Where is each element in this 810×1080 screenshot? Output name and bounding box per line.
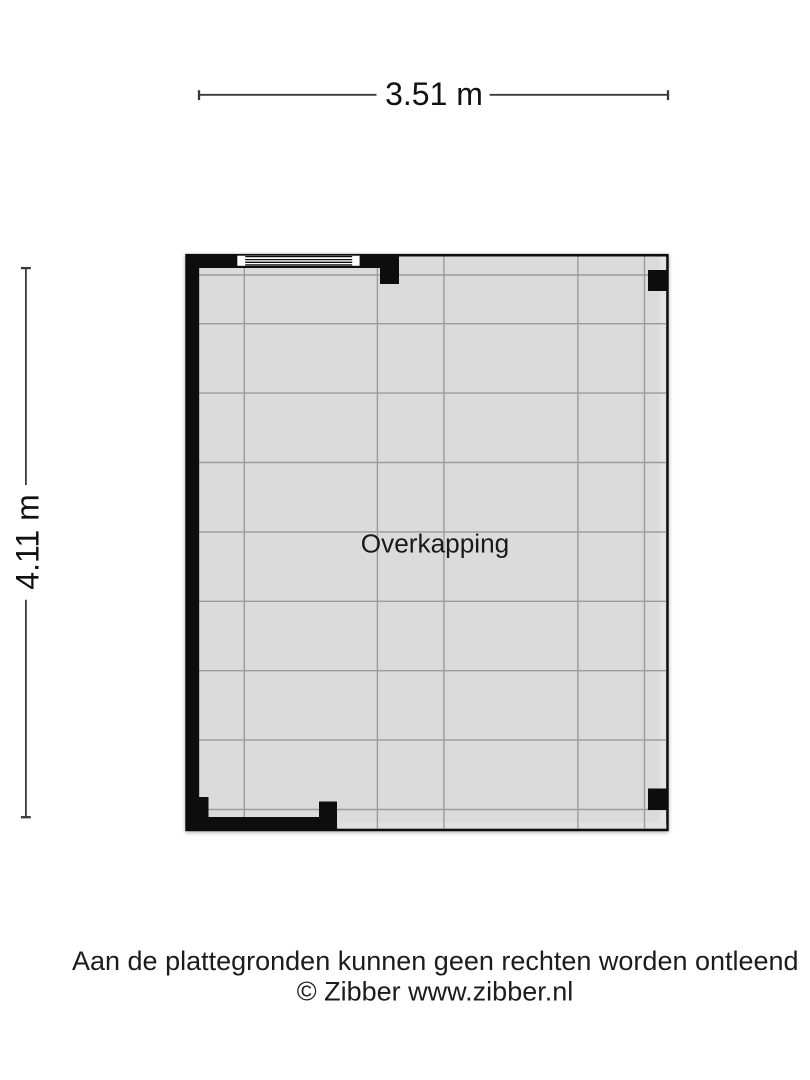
svg-text:© Zibber www.zibber.nl: © Zibber www.zibber.nl — [297, 977, 574, 1007]
svg-text:Overkapping: Overkapping — [361, 529, 509, 559]
svg-text:4.11 m: 4.11 m — [10, 494, 46, 589]
svg-text:3.51 m: 3.51 m — [385, 76, 483, 112]
svg-text:Aan de plattegronden kunnen ge: Aan de plattegronden kunnen geen rechten… — [72, 946, 799, 976]
